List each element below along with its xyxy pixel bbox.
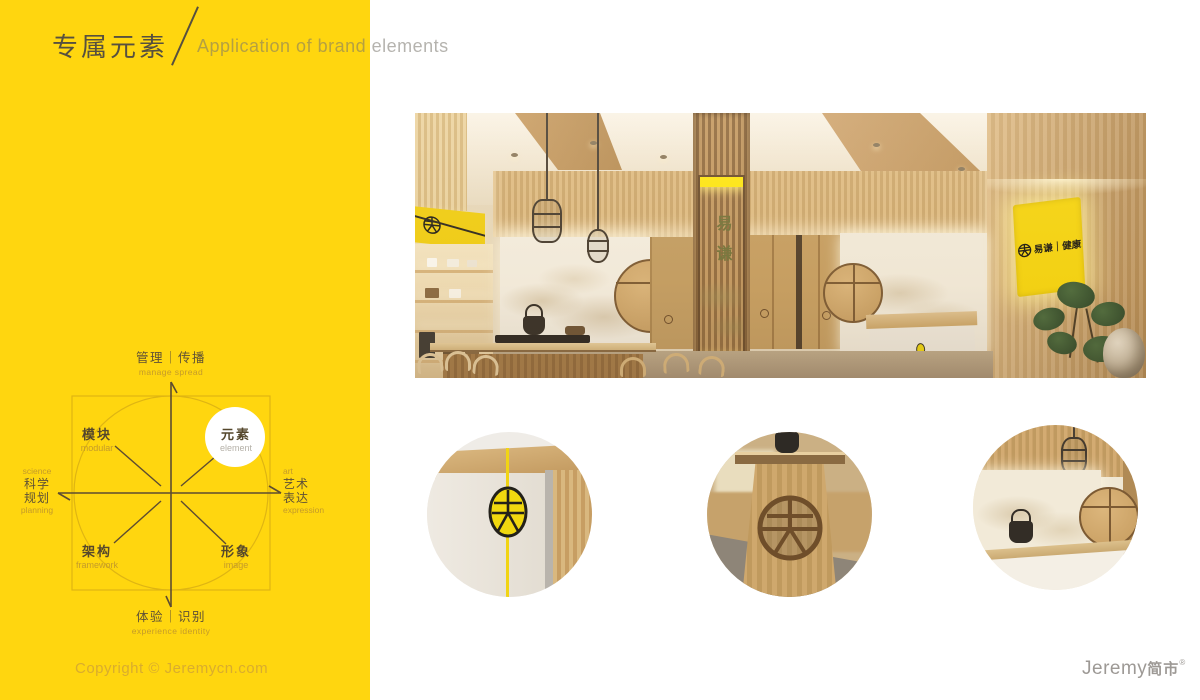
axis-label-right-en2: expression <box>283 505 353 516</box>
central-column: 易谦 <box>693 113 750 378</box>
ceiling-spotlight <box>511 153 518 157</box>
quadrant-modular-zh: 模块 <box>57 424 137 443</box>
quadrant-image-zh: 形象 <box>196 541 276 560</box>
table-top-slab <box>735 452 845 464</box>
brand-mark-icon <box>1017 242 1033 259</box>
quadrant-framework-zh: 架构 <box>57 541 137 560</box>
counter-white-panel <box>427 473 547 597</box>
lantern-cord <box>1073 425 1075 437</box>
ceramic-vase <box>1103 328 1145 378</box>
jeremy-brand-logo: Jeremy简市® <box>1082 658 1185 680</box>
page-title: 专属元素 <box>52 27 168 64</box>
shelf-product <box>447 259 459 267</box>
door-seam <box>772 235 774 349</box>
quadrant-framework-en: framework <box>57 560 137 570</box>
shelf-product <box>449 289 461 298</box>
axis-label-bottom-en: experience identity <box>101 626 241 637</box>
axis-label-top-zh: 管理｜传播 <box>101 351 241 367</box>
tea-kettle <box>1009 521 1033 543</box>
jeremy-logo-en: Jeremy <box>1082 658 1147 679</box>
moon-circle-emblem <box>1079 487 1138 547</box>
plant-leaves <box>1055 279 1097 311</box>
axis-label-top-en: manage spread <box>101 367 241 378</box>
tea-basket <box>565 326 585 335</box>
axis-label-right-zh1: 艺术 <box>283 477 353 491</box>
copyright-text: Copyright © Jeremycn.com <box>75 660 268 677</box>
tea-tray <box>495 335 590 343</box>
quadrant-element-highlighted: 元素 element <box>196 424 276 453</box>
lantern-cord <box>546 113 548 199</box>
quadrant-element-zh: 元素 <box>196 424 276 443</box>
plant-leaves <box>1089 300 1126 328</box>
banner-calligraphy-text: 易谦 <box>710 215 734 275</box>
cove-light-glow <box>975 179 1146 195</box>
ceiling-spotlight <box>660 155 667 159</box>
lantern-cord <box>597 113 599 229</box>
axis-label-top: 管理｜传播 manage spread <box>101 351 241 377</box>
wall-sign-text: 易谦｜健康 <box>1033 236 1081 256</box>
chair <box>620 357 646 377</box>
wood-door-panel <box>650 237 693 349</box>
wood-slat-texture <box>553 470 592 597</box>
plant-leaves <box>1031 304 1068 334</box>
tea-table-top <box>430 343 656 352</box>
column-banner: 易谦 <box>698 175 745 371</box>
ceiling-spotlight <box>590 141 597 145</box>
slide-canvas: 专属元素 Application of brand elements 管理｜传播… <box>0 0 1200 700</box>
quadrant-modular: 模块 modular <box>57 424 137 453</box>
shelf <box>415 270 493 273</box>
circular-cutout-brand-mark <box>754 492 826 564</box>
wire-lantern-lamp <box>532 199 562 243</box>
page-subtitle: Application of brand elements <box>197 36 449 57</box>
door-handle-ring <box>664 315 673 324</box>
detail-circle-table-cutout <box>707 432 872 597</box>
chair <box>445 351 471 371</box>
interior-photo: 易谦｜健康 易谦 <box>415 113 1146 378</box>
ceiling-spotlight <box>873 143 880 147</box>
quadrant-framework: 架构 framework <box>57 541 137 570</box>
brand-wheel-diagram: 管理｜传播 manage spread 体验｜识别 experience ide… <box>0 340 340 660</box>
door-handle-ring <box>760 309 769 318</box>
panel-gap <box>545 470 553 597</box>
axis-label-bottom-zh: 体验｜识别 <box>101 610 241 626</box>
shelf-product <box>425 288 439 298</box>
quadrant-image: 形象 image <box>196 541 276 570</box>
axis-label-right-zh2: 表达 <box>283 491 353 505</box>
axis-label-left: science 科学 规划 planning <box>7 466 67 516</box>
counter-wood-lid <box>866 311 977 329</box>
shelf-product <box>427 258 437 267</box>
axis-label-right-en1: art <box>283 466 353 477</box>
banner-yellow-strip <box>700 177 743 187</box>
axis-label-left-zh1: 科学 <box>7 477 67 491</box>
door-seam <box>818 235 820 349</box>
quadrant-element-en: element <box>196 443 276 453</box>
axis-label-right: art 艺术 表达 expression <box>283 466 353 516</box>
quadrant-image-en: image <box>196 560 276 570</box>
wood-slat-left-wall <box>415 113 467 211</box>
axis-label-bottom: 体验｜识别 experience identity <box>101 610 241 636</box>
quadrant-modular-en: modular <box>57 443 137 453</box>
wire-lantern-lamp <box>587 229 609 263</box>
shelf <box>415 300 493 303</box>
tea-kettle <box>523 316 545 335</box>
door-slot <box>796 235 802 349</box>
registered-mark: ® <box>1179 658 1185 667</box>
axis-label-left-en2: planning <box>7 505 67 516</box>
axis-label-left-en1: science <box>7 466 67 477</box>
detail-circle-wall-detail <box>973 425 1138 590</box>
kettle-silhouette <box>775 432 799 453</box>
shelf-product <box>467 260 477 267</box>
brand-mark-badge <box>488 486 528 538</box>
jeremy-logo-zh: 简市 <box>1147 661 1179 678</box>
detail-circle-logo-inlay <box>427 432 592 597</box>
axis-label-left-zh2: 规划 <box>7 491 67 505</box>
